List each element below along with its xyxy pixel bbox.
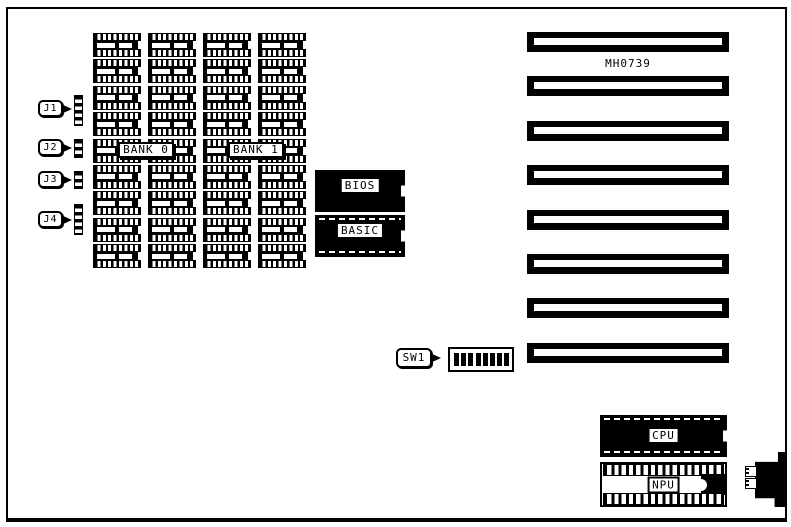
memory-chip: [148, 165, 196, 189]
chip-body-mark: [119, 254, 132, 259]
chip-pins-bottom: [205, 103, 249, 109]
chip-pins-bottom: [150, 129, 194, 135]
expansion-slot: [527, 165, 729, 185]
chip-pins-top: [205, 60, 249, 66]
memory-chip: [258, 244, 306, 268]
socket-dashed-line: [319, 218, 401, 220]
chip-pins-top: [95, 34, 139, 40]
chip-body-mark: [229, 174, 242, 179]
chip-pins-top: [260, 245, 304, 251]
chip-pins-bottom: [260, 129, 304, 135]
chip-body-mark: [262, 69, 280, 74]
chip-notch: [723, 431, 727, 442]
chip-notch: [138, 94, 141, 102]
chip-body-mark: [284, 43, 297, 48]
chip-body-mark: [229, 43, 242, 48]
expansion-slot: [527, 210, 729, 230]
expansion-slot: [527, 343, 729, 363]
chip-notch: [193, 199, 196, 207]
chip-pins-bottom: [205, 208, 249, 214]
chip-pins-top: [205, 34, 249, 40]
chip-body-mark: [152, 43, 170, 48]
expansion-slot: [527, 76, 729, 96]
chip-notch: [138, 199, 141, 207]
chip-body-mark: [207, 43, 225, 48]
chip-body-mark: [174, 148, 187, 153]
chip-pins-bottom: [205, 182, 249, 188]
chip-pins-top: [150, 192, 194, 198]
chip-notch: [303, 252, 306, 260]
chip-pins-top: [205, 113, 249, 119]
chip-notch: [193, 226, 196, 234]
jumper-j4-header: [74, 204, 83, 235]
chip-pins-top: [260, 192, 304, 198]
chip-notch: [401, 186, 405, 197]
chip-pins-bottom: [260, 182, 304, 188]
chip-body-mark: [284, 227, 297, 232]
chip-notch: [303, 173, 306, 181]
chip-pins-bottom: [205, 129, 249, 135]
chip-notch: [303, 120, 306, 128]
memory-chip: [258, 165, 306, 189]
npu-chip-label: NPU: [647, 476, 680, 493]
chip-body-mark: [284, 254, 297, 259]
socket-dashed-line: [604, 418, 723, 420]
dip-switch-position: [476, 353, 481, 366]
memory-chip: [203, 112, 251, 136]
memory-chip: [258, 33, 306, 57]
chip-pins-bottom: [95, 182, 139, 188]
expansion-slot: [527, 254, 729, 274]
chip-pins-bottom: [150, 235, 194, 241]
chip-body-mark: [97, 122, 115, 127]
chip-pins-bottom: [150, 76, 194, 82]
memory-chip: [148, 244, 196, 268]
memory-chip: [148, 86, 196, 110]
chip-pins-top: [205, 219, 249, 225]
chip-notch: [303, 226, 306, 234]
chip-pins-bottom: [150, 208, 194, 214]
memory-chip: [203, 218, 251, 242]
chip-body-mark: [262, 201, 280, 206]
motherboard-diagram: BANK 0 BANK 1 J1 J2 J3 J4 BIOS BASIC MH0…: [0, 0, 791, 527]
dip-switch-position: [454, 353, 459, 366]
chip-body-mark: [152, 122, 170, 127]
expansion-slot: [527, 32, 729, 52]
chip-body-mark: [97, 254, 115, 259]
chip-body-mark: [174, 122, 187, 127]
memory-chip: [93, 86, 141, 110]
chip-body-mark: [174, 43, 187, 48]
cpu-chip: CPU: [600, 415, 727, 457]
chip-body-mark: [97, 227, 115, 232]
chip-pins-bottom: [95, 235, 139, 241]
chip-pins-top: [150, 245, 194, 251]
jumper-j2-label: J2: [38, 139, 63, 156]
chip-body-mark: [229, 122, 242, 127]
chip-pins-bottom: [260, 76, 304, 82]
chip-body-mark: [262, 174, 280, 179]
board-part-number: MH0739: [527, 57, 729, 70]
chip-pins-bottom: [95, 103, 139, 109]
chip-notch: [248, 252, 251, 260]
chip-body-mark: [97, 174, 115, 179]
chip-body-mark: [229, 201, 242, 206]
chip-body-mark: [119, 227, 132, 232]
chip-pins-bottom: [95, 50, 139, 56]
basic-chip: BASIC: [315, 215, 405, 257]
memory-chip: [203, 244, 251, 268]
chip-pins-top: [150, 60, 194, 66]
chip-body-mark: [229, 95, 242, 100]
chip-pins-top: [260, 113, 304, 119]
chip-body-mark: [284, 95, 297, 100]
chip-body-mark: [97, 148, 115, 153]
chip-notch: [248, 226, 251, 234]
chip-pins-top: [150, 166, 194, 172]
chip-pins-bottom: [150, 182, 194, 188]
basic-chip-label: BASIC: [338, 224, 382, 237]
chip-pins-bottom: [205, 261, 249, 267]
chip-notch: [193, 94, 196, 102]
socket-dashed-line: [604, 451, 723, 453]
chip-notch: [303, 147, 306, 155]
chip-pins-top: [95, 87, 139, 93]
cpu-chip-label: CPU: [649, 429, 678, 442]
connector-pin-block: [745, 466, 757, 477]
chip-body-mark: [284, 174, 297, 179]
chip-body-mark: [207, 69, 225, 74]
chip-pins-top: [205, 245, 249, 251]
memory-chip: [148, 218, 196, 242]
chip-notch: [193, 252, 196, 260]
chip-notch: [248, 67, 251, 75]
memory-chip: [93, 112, 141, 136]
chip-notch: [303, 67, 306, 75]
chip-body-mark: [229, 254, 242, 259]
chip-body-mark: [229, 69, 242, 74]
chip-pins-bottom: [95, 208, 139, 214]
chip-body-mark: [152, 227, 170, 232]
chip-body-mark: [174, 174, 187, 179]
chip-pins-top: [95, 166, 139, 172]
dip-switch-position: [490, 353, 495, 366]
chip-pins-bottom: [95, 76, 139, 82]
chip-pins-top: [260, 166, 304, 172]
chip-pins-top: [150, 34, 194, 40]
chip-pins-bottom: [205, 235, 249, 241]
jumper-j1-header: [74, 95, 83, 126]
chip-notch: [193, 120, 196, 128]
chip-body-mark: [152, 201, 170, 206]
jumper-j1-label: J1: [38, 100, 63, 117]
chip-notch: [303, 41, 306, 49]
chip-pins-bottom: [260, 261, 304, 267]
memory-chip: [93, 244, 141, 268]
chip-body-mark: [97, 43, 115, 48]
chip-pins-bottom: [150, 103, 194, 109]
chip-notch: [248, 199, 251, 207]
chip-body-mark: [284, 201, 297, 206]
chip-pins-top: [95, 219, 139, 225]
dip-switch-position: [504, 353, 509, 366]
socket-pins-bottom: [603, 493, 724, 505]
chip-pins-top: [260, 34, 304, 40]
chip-pins-bottom: [150, 261, 194, 267]
chip-body-mark: [119, 201, 132, 206]
memory-chip: [258, 86, 306, 110]
chip-body-mark: [174, 227, 187, 232]
expansion-slot-stack: [527, 32, 729, 387]
memory-chip: [203, 191, 251, 215]
chip-notch: [248, 94, 251, 102]
chip-notch: [138, 41, 141, 49]
chip-body-mark: [284, 148, 297, 153]
chip-body-mark: [207, 122, 225, 127]
chip-pins-bottom: [95, 129, 139, 135]
chip-notch: [138, 173, 141, 181]
memory-chip: [258, 191, 306, 215]
jumper-j4-label: J4: [38, 211, 63, 228]
bios-chip: BIOS: [315, 170, 405, 212]
chip-notch: [138, 252, 141, 260]
chip-pins-bottom: [205, 76, 249, 82]
memory-chip: [258, 218, 306, 242]
chip-notch: [193, 173, 196, 181]
chip-body-mark: [174, 95, 187, 100]
chip-notch: [138, 67, 141, 75]
memory-chip: [203, 33, 251, 57]
chip-pins-top: [150, 219, 194, 225]
chip-pins-bottom: [260, 235, 304, 241]
chip-pins-bottom: [260, 50, 304, 56]
chip-body-mark: [97, 95, 115, 100]
dip-switch-position: [461, 353, 466, 366]
dip-switch-position: [497, 353, 502, 366]
memory-chip: [93, 218, 141, 242]
chip-pins-top: [95, 245, 139, 251]
memory-chip: [93, 191, 141, 215]
memory-chip: [203, 59, 251, 83]
chip-body-mark: [262, 95, 280, 100]
jumper-j3-label: J3: [38, 171, 63, 188]
memory-chip: [148, 59, 196, 83]
chip-body-mark: [174, 69, 187, 74]
jumper-j3-header: [74, 171, 83, 189]
chip-pins-top: [260, 87, 304, 93]
chip-body-mark: [207, 254, 225, 259]
chip-body-mark: [207, 148, 225, 153]
chip-body-mark: [119, 122, 132, 127]
chip-pins-bottom: [205, 50, 249, 56]
chip-body-mark: [262, 122, 280, 127]
chip-notch: [138, 226, 141, 234]
chip-body-mark: [119, 43, 132, 48]
chip-notch: [248, 41, 251, 49]
chip-notch: [138, 120, 141, 128]
chip-pins-top: [95, 113, 139, 119]
chip-notch: [303, 94, 306, 102]
chip-body-mark: [152, 95, 170, 100]
chip-pins-bottom: [260, 208, 304, 214]
chip-pins-top: [205, 192, 249, 198]
chip-notch: [303, 199, 306, 207]
chip-body-mark: [262, 43, 280, 48]
chip-pins-top: [95, 192, 139, 198]
chip-body-mark: [284, 122, 297, 127]
connector-pin-block: [745, 478, 757, 489]
chip-body-mark: [262, 227, 280, 232]
chip-body-mark: [152, 69, 170, 74]
chip-body-mark: [262, 254, 280, 259]
memory-chip: [93, 59, 141, 83]
chip-pins-top: [205, 87, 249, 93]
memory-chip: [258, 59, 306, 83]
chip-notch: [193, 67, 196, 75]
dip-switch-position: [468, 353, 473, 366]
chip-body-mark: [207, 201, 225, 206]
memory-chip: [93, 33, 141, 57]
memory-chip: [258, 112, 306, 136]
chip-notch: [193, 147, 196, 155]
memory-chip: [203, 86, 251, 110]
chip-pins-top: [150, 113, 194, 119]
memory-chip: [148, 33, 196, 57]
chip-pins-top: [260, 60, 304, 66]
jumper-j2-header: [74, 139, 83, 158]
chip-body-mark: [97, 201, 115, 206]
expansion-slot: [527, 298, 729, 318]
memory-chip: [148, 191, 196, 215]
chip-body-mark: [97, 69, 115, 74]
bios-chip-label: BIOS: [342, 179, 379, 192]
chip-notch: [401, 231, 405, 242]
chip-pins-bottom: [150, 50, 194, 56]
sw1-label: SW1: [396, 348, 432, 368]
chip-body-mark: [207, 174, 225, 179]
chip-pins-bottom: [260, 103, 304, 109]
bank1-label: BANK 1: [228, 142, 284, 158]
chip-body-mark: [207, 227, 225, 232]
chip-body-mark: [174, 254, 187, 259]
dip-switch-position: [483, 353, 488, 366]
chip-body-mark: [152, 174, 170, 179]
socket-end-cap: [701, 474, 725, 495]
chip-pins-top: [95, 60, 139, 66]
chip-body-mark: [229, 227, 242, 232]
chip-pins-bottom: [95, 261, 139, 267]
chip-body-mark: [152, 254, 170, 259]
expansion-slot: [527, 121, 729, 141]
chip-body-mark: [119, 69, 132, 74]
chip-notch: [193, 41, 196, 49]
memory-chip: [148, 112, 196, 136]
memory-chip: [203, 165, 251, 189]
chip-body-mark: [119, 174, 132, 179]
bank0-label: BANK 0: [118, 142, 174, 158]
chip-pins-top: [260, 219, 304, 225]
socket-dashed-line: [319, 251, 401, 253]
chip-pins-top: [150, 87, 194, 93]
chip-body-mark: [207, 95, 225, 100]
chip-body-mark: [119, 95, 132, 100]
chip-body-mark: [284, 69, 297, 74]
memory-chip: [93, 165, 141, 189]
chip-body-mark: [174, 201, 187, 206]
chip-notch: [248, 173, 251, 181]
npu-socket: NPU: [600, 462, 727, 507]
dip-switch-block: [448, 347, 514, 372]
chip-notch: [248, 120, 251, 128]
chip-pins-top: [205, 166, 249, 172]
